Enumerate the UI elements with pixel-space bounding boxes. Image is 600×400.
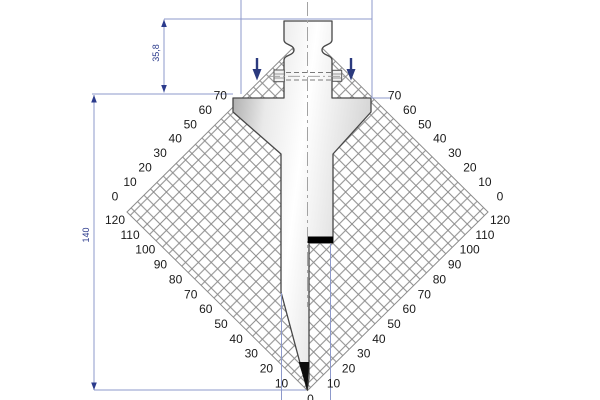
scale-label: 20 — [342, 362, 356, 376]
scale-label: 50 — [214, 317, 228, 331]
scale-label: 60 — [403, 302, 417, 316]
scale-label: 20 — [463, 161, 477, 175]
scale-label: 100 — [135, 243, 155, 257]
scale-label: 30 — [357, 347, 371, 361]
scale-label: 90 — [154, 258, 168, 272]
scale-label: 120 — [490, 213, 510, 227]
scale-label: 110 — [475, 228, 494, 242]
scale-label: 10 — [275, 377, 289, 391]
bottom-vertex-zero-label: 0 — [307, 392, 314, 400]
scale-label: 70 — [214, 88, 228, 102]
scale-label: 30 — [448, 146, 462, 160]
scale-label: 80 — [169, 272, 183, 286]
scale-label: 50 — [184, 117, 198, 131]
scale-label: 40 — [229, 332, 243, 346]
scale-label: 60 — [199, 103, 213, 117]
scale-label: 50 — [418, 117, 432, 131]
scale-label: 10 — [327, 377, 341, 391]
scale-label: 50 — [387, 317, 401, 331]
arrowhead-up-icon — [161, 20, 167, 28]
scale-label: 40 — [433, 132, 447, 146]
dimension-label-shank-height: 35,8 — [151, 44, 161, 62]
arrowhead-down-icon — [161, 85, 167, 93]
scale-label: 10 — [478, 175, 492, 189]
scale-label: 40 — [169, 132, 183, 146]
scale-label: 10 — [123, 175, 137, 189]
scale-label: 40 — [372, 332, 386, 346]
scale-label: 60 — [199, 302, 213, 316]
drawing-canvas: 35,8 140 7060504030201007060504030201001… — [0, 0, 600, 400]
dimension-label-total-height: 140 — [81, 227, 91, 242]
scale-label: 0 — [497, 190, 504, 204]
arrowhead-down-icon — [91, 383, 97, 391]
scale-label: 70 — [388, 88, 402, 102]
screw-head — [274, 70, 284, 82]
scale-label: 70 — [418, 287, 432, 301]
technical-drawing: 35,8 140 7060504030201007060504030201001… — [0, 0, 600, 400]
scale-label: 70 — [184, 287, 198, 301]
screw-nut — [332, 70, 341, 81]
scale-label: 30 — [153, 146, 167, 160]
scale-label: 110 — [121, 228, 140, 242]
scale-label: 20 — [138, 161, 152, 175]
scale-label: 60 — [403, 103, 417, 117]
scale-label: 100 — [460, 243, 480, 257]
arrowhead-up-icon — [91, 95, 97, 103]
scale-label: 30 — [245, 347, 259, 361]
down-arrow-icon — [253, 58, 262, 81]
scale-label: 20 — [260, 362, 274, 376]
scale-label: 90 — [448, 258, 462, 272]
working-height-marker — [308, 237, 334, 244]
scale-label: 80 — [433, 272, 447, 286]
scale-label: 120 — [105, 213, 125, 227]
scale-label: 0 — [112, 190, 119, 204]
